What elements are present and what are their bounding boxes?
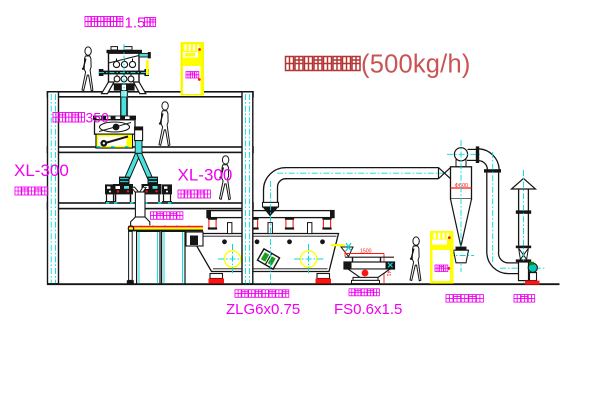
- svg-text:ZLG6x0.75: ZLG6x0.75: [226, 301, 300, 318]
- svg-text:1.5: 1.5: [125, 15, 146, 32]
- svg-text:(500kg/h): (500kg/h): [361, 51, 471, 79]
- svg-text:XL-300: XL-300: [14, 161, 69, 180]
- svg-text:FS0.6x1.5: FS0.6x1.5: [334, 301, 402, 318]
- svg-text:350: 350: [86, 110, 110, 126]
- svg-text:XL-300: XL-300: [178, 166, 233, 185]
